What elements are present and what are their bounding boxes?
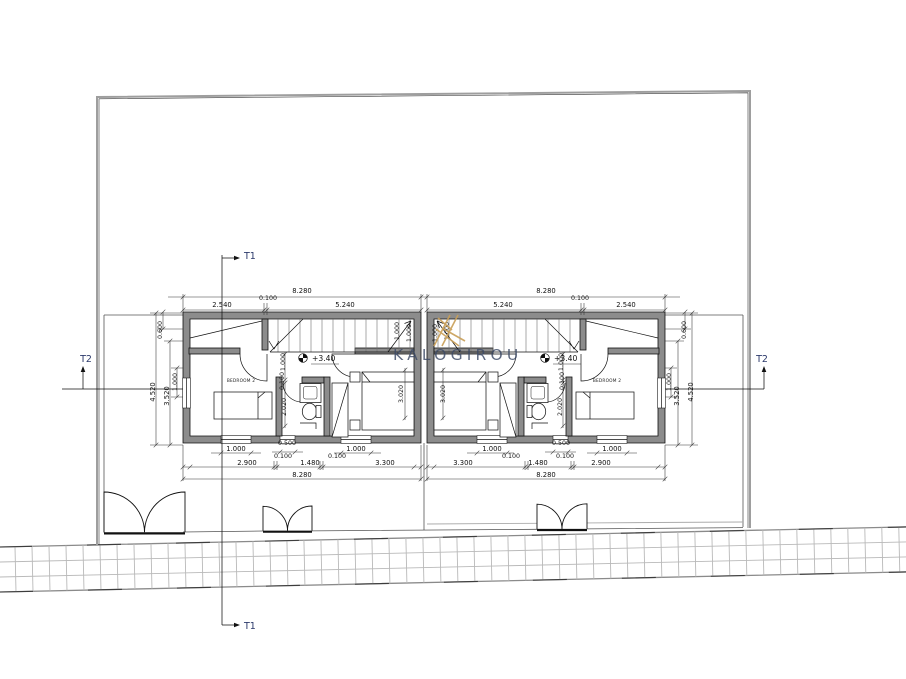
dim-int-left-4: 1.000: [394, 322, 401, 340]
dim-bottom-seg-left-2: 1.480: [300, 459, 319, 467]
dim-bottom-seg-right-1: 0.100: [502, 453, 520, 460]
dim-bottom-seg-right-0: 3.300: [453, 459, 472, 467]
dim-bottom-seg-right-3: 0.100: [556, 453, 574, 460]
t2-label-left: T2: [79, 354, 92, 365]
t1-label-top: T1: [243, 251, 256, 262]
dim-int-left-0: 1.000: [280, 353, 287, 371]
t2-label-right: T2: [755, 354, 768, 365]
dim-window-right-1: 0.500: [552, 440, 570, 447]
dim-int-left-2: 2.020: [281, 398, 288, 416]
dim-bottom-total-right: 8.280: [536, 471, 555, 479]
unit-right: [427, 312, 665, 443]
level-label-left: +3.40: [312, 354, 335, 363]
dim-int-right-2: 2.020: [557, 398, 564, 416]
room-label-left: BEDROOM 2: [227, 378, 255, 384]
gate-right-small: [537, 504, 587, 529]
dim-int-left-1: 0.100: [279, 372, 286, 390]
dim-window-left-1: 0.500: [278, 440, 296, 447]
dim-top-total-left: 8.280: [292, 287, 311, 295]
dim-top-seg-right-2: 2.540: [616, 301, 635, 309]
dim-bottom-total-left: 8.280: [292, 471, 311, 479]
dim-int-right-1: 0.100: [559, 372, 566, 390]
dim-window-left-2: 1.000: [346, 445, 365, 453]
floorplan-page: 8.280 2.540 0.100 5.240 1.000 0.500 1.00…: [0, 0, 906, 679]
dim-bottom-seg-left-4: 3.300: [375, 459, 394, 467]
dim-bottom-seg-left-3: 0.100: [328, 453, 346, 460]
floor-plan-canvas: 8.280 2.540 0.100 5.240 1.000 0.500 1.00…: [0, 0, 906, 679]
dim-bottom-seg-right-2: 1.480: [528, 459, 547, 467]
dim-top-seg-left-0: 2.540: [212, 301, 231, 309]
unit-left: [183, 312, 421, 443]
entrance-gates: [104, 492, 587, 533]
dim-int-left-3: 3.020: [398, 385, 405, 403]
dim-side-left-2: 3.520: [163, 386, 171, 405]
dim-int-left-5: 1.000: [406, 324, 413, 342]
t1-label-bottom: T1: [243, 621, 256, 632]
watermark-text: KALOGIROU: [393, 346, 522, 364]
gate-left-large: [104, 492, 185, 533]
dim-top-seg-left-1: 0.100: [259, 295, 277, 302]
dim-side-right-2: 3.520: [673, 386, 681, 405]
dim-top-seg-right-0: 5.240: [493, 301, 512, 309]
pavement: [0, 527, 906, 592]
dim-side-left-0: 0.600: [157, 321, 164, 339]
dim-window-right-0: 1.000: [482, 445, 501, 453]
dim-bottom-seg-left-1: 0.100: [274, 453, 292, 460]
dim-window-right-2: 1.000: [602, 445, 621, 453]
dim-bottom-seg-right-4: 2.900: [591, 459, 610, 467]
gate-left-small: [263, 506, 312, 531]
dim-int-right-3: 3.020: [440, 385, 447, 403]
room-label-right: BEDROOM 2: [593, 378, 621, 384]
dim-bottom-seg-left-0: 2.900: [237, 459, 256, 467]
dim-top-seg-left-2: 5.240: [335, 301, 354, 309]
dim-window-left-0: 1.000: [226, 445, 245, 453]
dim-top-total-right: 8.280: [536, 287, 555, 295]
dim-top-seg-right-1: 0.100: [571, 295, 589, 302]
dim-side-left-1: 4.520: [149, 382, 157, 401]
dim-side-right-1: 4.520: [687, 382, 695, 401]
dim-side-right-3: 1.000: [666, 373, 673, 391]
level-label-right: +3.40: [554, 354, 577, 363]
dim-side-right-0: 0.600: [681, 321, 688, 339]
dim-side-left-3: 1.000: [172, 373, 179, 391]
